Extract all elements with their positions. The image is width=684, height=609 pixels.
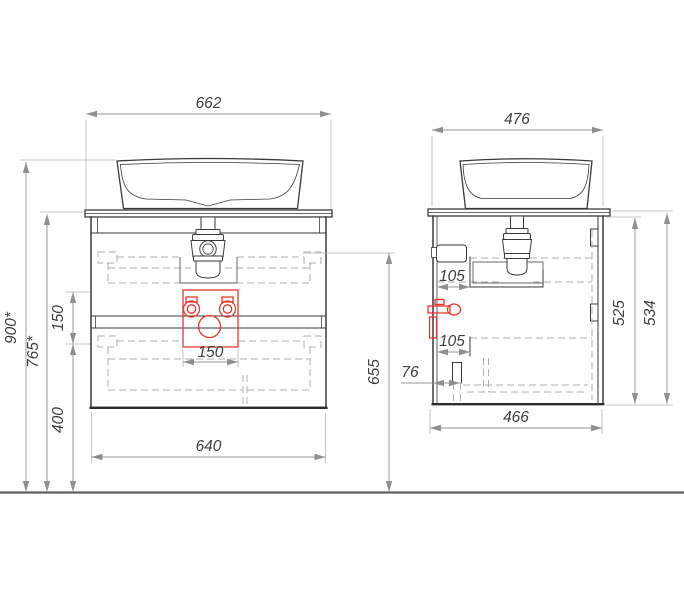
- front-view: [85, 159, 332, 408]
- side-sink: [460, 159, 592, 209]
- valve-body: [428, 306, 450, 313]
- dim-front-connection-width: 150: [198, 344, 224, 361]
- dim-handle-height: 655: [366, 359, 383, 385]
- valve-top-block: [435, 300, 444, 305]
- vanity-dimension-drawing: 662 900* 765* 150 400 150 640 655: [0, 0, 684, 609]
- drawer2-right-handle: [304, 336, 321, 347]
- dim-front-connection-height: 150: [50, 305, 67, 331]
- front-siphon: [191, 217, 225, 278]
- side-siphon: [503, 216, 532, 275]
- dim-side-upper-offset: 105: [439, 268, 465, 285]
- dim-side-lower-offset: 105: [439, 333, 465, 350]
- front-countertop: [85, 210, 332, 217]
- dim-front-counter-height: 765*: [25, 335, 42, 368]
- connection-zone-box: [183, 290, 238, 347]
- drain-outlet: [199, 316, 221, 338]
- dim-side-cabinet-depth: 466: [503, 409, 529, 426]
- dim-front-top-width: 662: [196, 95, 222, 112]
- dim-side-top-depth: 476: [504, 111, 530, 128]
- drawer2-left-handle: [98, 336, 117, 347]
- water-valve-left: [184, 301, 200, 317]
- dim-side-cabinet-height: 525: [611, 300, 628, 326]
- dim-side-total-height: 534: [642, 300, 659, 326]
- drain-pipe-profile: [453, 363, 462, 384]
- drawer1-right-handle: [304, 252, 321, 263]
- dimension-annotations: 662 900* 765* 150 400 150 640 655: [3, 95, 673, 492]
- dim-front-overall-height: 900*: [3, 311, 20, 344]
- front-sink: [117, 159, 303, 209]
- drawer1-left-handle: [98, 252, 117, 263]
- plumbing-connection-zone: [183, 290, 238, 347]
- technical-drawing-page: 662 900* 765* 150 400 150 640 655: [0, 0, 684, 609]
- dim-side-drain-offset: 76: [401, 364, 419, 381]
- side-countertop: [428, 209, 610, 216]
- dim-front-cabinet-width: 640: [196, 438, 222, 455]
- water-valve-right: [220, 301, 236, 317]
- dim-front-bottom-clearance: 400: [50, 407, 67, 433]
